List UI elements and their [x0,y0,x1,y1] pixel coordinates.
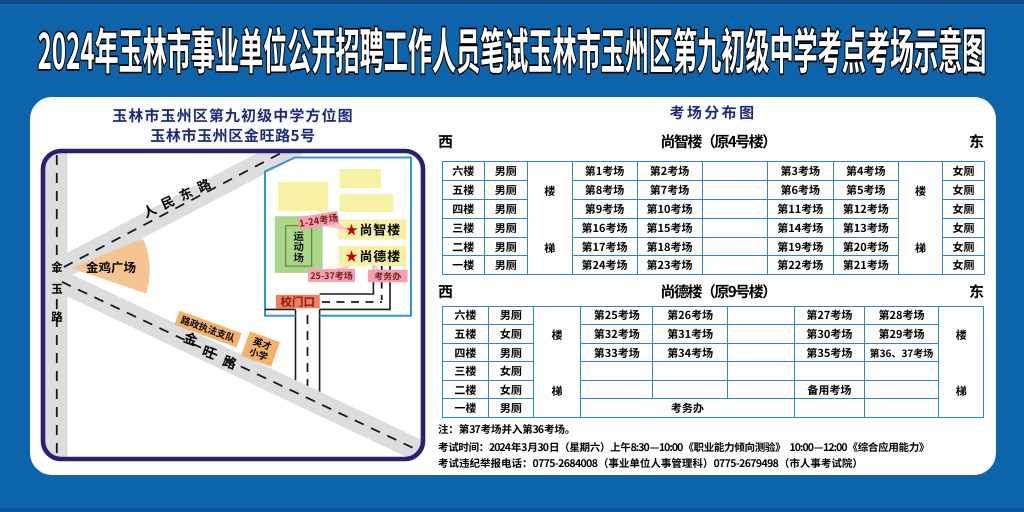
svg-text:场: 场 [293,250,304,265]
svg-text:路: 路 [51,309,63,325]
svg-text:考务办: 考务办 [374,270,401,283]
svg-text:★: ★ [345,246,358,265]
svg-text:尚德楼: 尚德楼 [360,246,401,265]
svg-text:金: 金 [51,259,63,275]
svg-text:25-37考场: 25-37考场 [310,269,353,282]
svg-text:金鸡广场: 金鸡广场 [86,257,136,276]
svg-text:尚智楼: 尚智楼 [360,220,401,239]
svg-text:玉: 玉 [51,281,63,297]
svg-text:校门口: 校门口 [281,294,316,310]
